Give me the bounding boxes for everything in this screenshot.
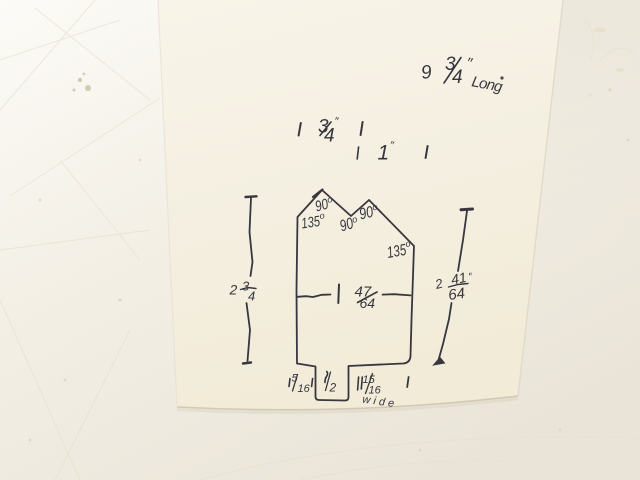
svg-text:16: 16: [298, 383, 311, 395]
svg-text:4: 4: [248, 289, 255, 304]
svg-text:1: 1: [378, 142, 390, 165]
svg-text:135: 135: [300, 212, 321, 231]
svg-text:4: 4: [452, 67, 463, 88]
svg-text:2: 2: [229, 282, 238, 298]
svg-text:64: 64: [447, 285, 466, 304]
svg-text:2: 2: [329, 381, 337, 395]
